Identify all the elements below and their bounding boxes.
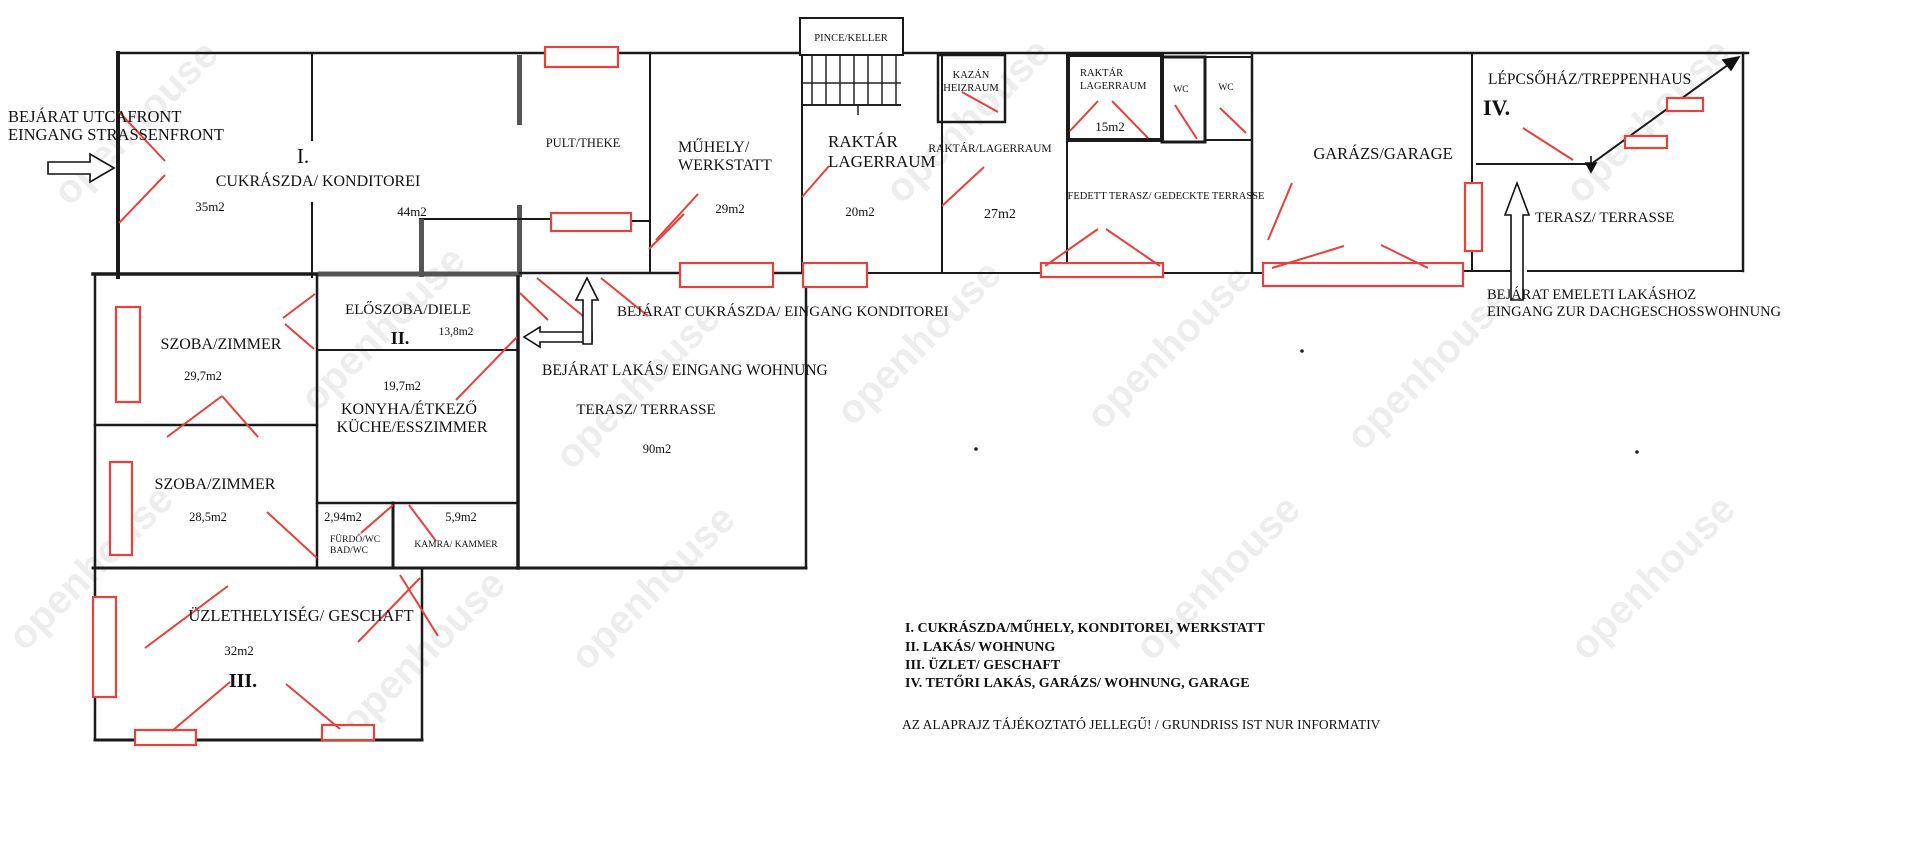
window [1465, 183, 1482, 251]
room-label: KONYHA/ÉTKEZŐ [341, 399, 477, 418]
room-area: 44m2 [397, 204, 427, 219]
room-label: PINCE/KELLER [814, 33, 888, 44]
door-swing [283, 294, 315, 318]
wc1-box [1162, 57, 1205, 142]
door-swing [456, 337, 517, 400]
room-area: 35m2 [195, 199, 225, 214]
room-label: CUKRÁSZDA/ KONDITOREI [216, 171, 421, 190]
room-label: TERASZ/ TERRASSE [1535, 210, 1674, 226]
room-label: GARÁZS/GARAGE [1313, 144, 1452, 163]
entrance-street-label: EINGANG STRASSENFRONT [8, 125, 224, 144]
watermark-text: openhouse [1562, 487, 1744, 669]
door-swing [285, 324, 314, 349]
door-swing [537, 278, 583, 316]
floor-plan-canvas: openhouse openhouse openhouse openhouse … [0, 0, 1920, 858]
room-label: WC [1173, 85, 1188, 95]
room-label: SZOBA/ZIMMER [155, 476, 276, 493]
door-swing [167, 396, 222, 437]
room-area: 32m2 [224, 643, 254, 658]
apartment-entrance-arrow-left [524, 327, 592, 347]
legend-item: II. LAKÁS/ WOHNUNG [905, 638, 1055, 655]
room-label: KAZÁN [953, 69, 990, 81]
watermark-text: openhouse [562, 497, 744, 679]
room-label: RAKTÁR [828, 132, 899, 151]
room-label: MŰHELY/ [678, 137, 750, 156]
window [803, 263, 867, 287]
garage-door [1263, 263, 1463, 286]
room-label: LÉPCSŐHÁZ/TREPPENHAUS [1488, 71, 1691, 88]
door-swing [520, 293, 548, 320]
dot [974, 447, 978, 451]
room-label: FEDETT TERASZ/ GEDECKTE TERRASSE [1068, 191, 1265, 202]
room-numeral: III. [229, 670, 257, 692]
door-swing [1106, 229, 1160, 266]
door-swing [656, 194, 698, 240]
room-area: 2,94m2 [324, 510, 362, 524]
door-swing [409, 505, 436, 541]
room-label: SZOBA/ZIMMER [161, 336, 282, 353]
room-area: 15m2 [1095, 119, 1125, 134]
door-swing [1070, 101, 1098, 131]
window [1041, 263, 1163, 277]
room-area: 13,8m2 [439, 326, 474, 338]
room-label: BAD/WC [330, 546, 368, 556]
room-label: KÜCHE/ESSZIMMER [336, 418, 487, 436]
door-swing [361, 505, 393, 533]
room-numeral: I. [297, 144, 309, 168]
upper-apartment-arrow [1505, 183, 1529, 300]
dot [1635, 450, 1639, 454]
room-numeral: II. [391, 328, 410, 348]
room-label: TERASZ/ TERRASSE [576, 402, 715, 418]
door-swing [119, 175, 165, 223]
door-swing [649, 214, 684, 249]
wall-segment [517, 205, 522, 277]
room-area: 90m2 [643, 442, 671, 456]
entrance-upper-label: EINGANG ZUR DACHGESCHOSSWOHNUNG [1487, 304, 1782, 320]
door-swing [1268, 183, 1292, 240]
wall-segment [419, 219, 424, 277]
window [135, 730, 196, 745]
window [545, 47, 618, 67]
room-label: KAMRA/ KAMMER [414, 540, 498, 550]
legend-item: I. CUKRÁSZDA/MŰHELY, KONDITOREI, WERKSTA… [905, 619, 1265, 636]
window [116, 307, 140, 402]
room-label: LAGERRAUM [1080, 81, 1147, 92]
door-swing [1523, 128, 1573, 160]
window [551, 213, 631, 231]
window [322, 725, 374, 740]
entrance-street-label: BEJÁRAT UTCAFRONT [8, 107, 181, 126]
stair-window [1667, 98, 1703, 111]
watermark-text: openhouse [1078, 256, 1260, 438]
door-swing [267, 512, 317, 558]
room-label: LAGERRAUM [828, 152, 936, 171]
watermark-text: openhouse [1557, 30, 1739, 212]
wall-segment [517, 55, 522, 125]
dot [1300, 349, 1304, 353]
door-swing [1220, 108, 1246, 133]
room-label: ELŐSZOBA/DIELE [345, 301, 471, 318]
stair-window [1625, 136, 1667, 148]
entrance-konditorei-label: BEJÁRAT CUKRÁSZDA/ EINGANG KONDITOREI [617, 303, 949, 320]
stray-marks [974, 349, 1639, 454]
room-area: 27m2 [984, 207, 1016, 222]
room-label: WERKSTATT [678, 157, 772, 174]
watermark-text: openhouse [1127, 487, 1309, 669]
door-swing [802, 166, 829, 197]
cellar-stairs [803, 56, 901, 115]
legend-item: IV. TETŐRI LAKÁS, GARÁZS/ WOHNUNG, GARAG… [905, 674, 1250, 691]
room-label: HEIZRAUM [943, 83, 999, 94]
window [680, 263, 773, 287]
room-label: RAKTÁR [1080, 67, 1123, 79]
door-swing [1045, 229, 1098, 266]
floor-plan: openhouse openhouse openhouse openhouse … [0, 0, 1920, 858]
room-area: 20m2 [845, 204, 875, 219]
entrance-upper-label: BEJÁRAT EMELETI LAKÁSHOZ [1487, 286, 1696, 303]
door-swing [172, 682, 230, 731]
door-swing [1175, 105, 1197, 139]
room-area: 29m2 [715, 201, 745, 216]
legend: I. CUKRÁSZDA/MŰHELY, KONDITOREI, WERKSTA… [902, 619, 1381, 732]
room-area: 5,9m2 [445, 510, 477, 524]
window [110, 462, 132, 555]
door-swing [942, 167, 984, 206]
wc2-box [1205, 57, 1252, 140]
room-label: RAKTÁR/LAGERRAUM [928, 141, 1051, 155]
entrance-wohnung-label: BEJÁRAT LAKÁS/ EINGANG WOHNUNG [542, 362, 828, 379]
watermark-text: openhouse [547, 296, 729, 478]
legend-item: III. ÜZLET/ GESCHAFT [905, 656, 1061, 673]
legend-disclaimer: AZ ALAPRAJZ TÁJÉKOZTATÓ JELLEGŰ! / GRUND… [902, 717, 1381, 732]
room-label: WC [1218, 83, 1233, 93]
door-swing [222, 396, 258, 437]
room-area: 19,7m2 [383, 379, 421, 393]
room-label: PULT/THEKE [546, 136, 621, 150]
room-area: 28,5m2 [189, 510, 227, 524]
room-label: FÜRDŐ/WC [330, 533, 380, 545]
door-swing [286, 684, 340, 729]
room-area: 29,7m2 [184, 369, 222, 383]
window [93, 597, 116, 697]
room-numeral: IV. [1483, 95, 1510, 120]
room-label: ÜZLETHELYISÉG/ GESCHAFT [188, 606, 413, 625]
